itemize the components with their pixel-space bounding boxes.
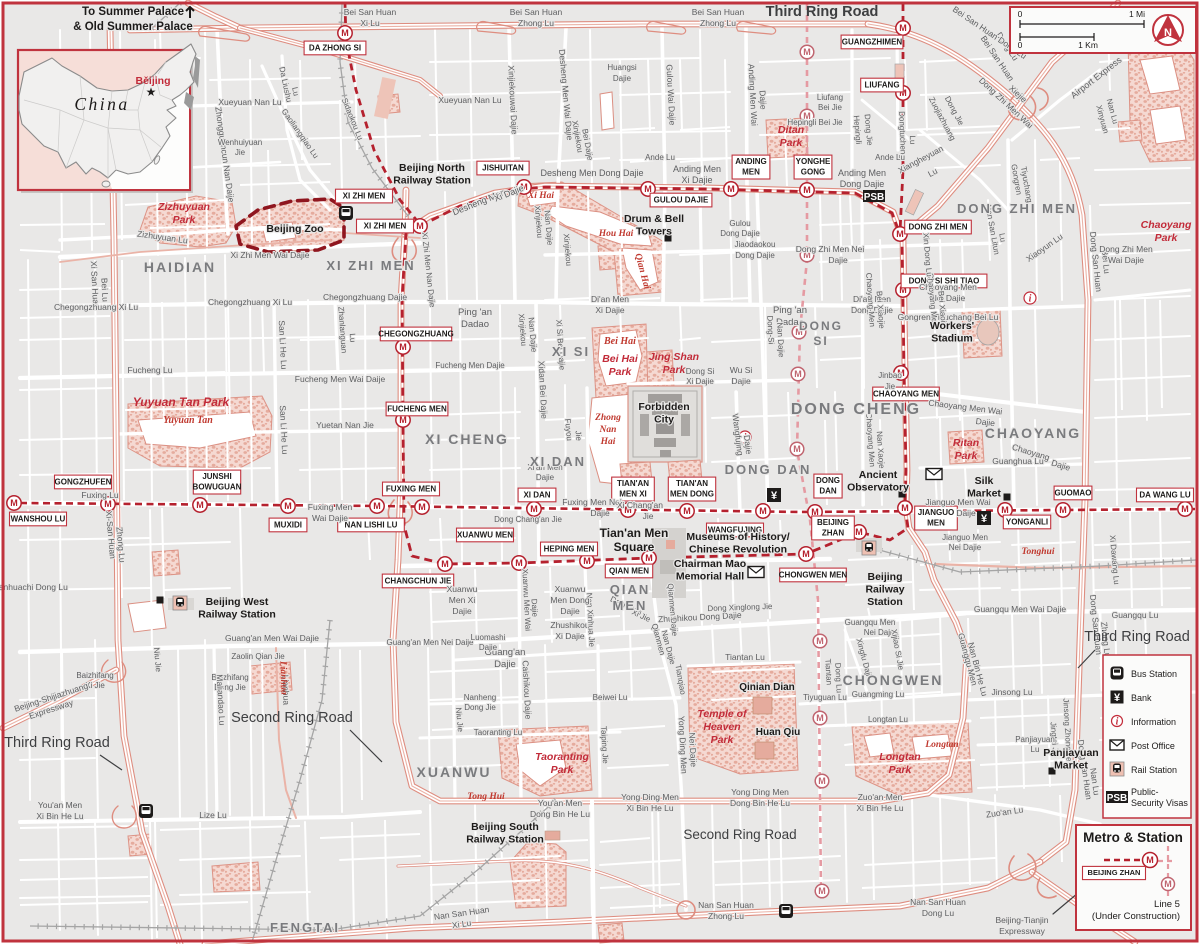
svg-text:Lu: Lu <box>290 86 301 97</box>
svg-text:¥: ¥ <box>981 513 988 525</box>
svg-text:Park: Park <box>711 734 735 746</box>
svg-text:Zhushikou: Zhushikou <box>550 620 589 630</box>
svg-text:M: M <box>399 342 407 352</box>
svg-text:GONG: GONG <box>801 167 825 176</box>
svg-text:Anding Men: Anding Men <box>838 168 886 178</box>
svg-text:Railway: Railway <box>865 584 904 596</box>
svg-text:M: M <box>583 556 591 566</box>
svg-text:Dong Si: Dong Si <box>686 367 715 376</box>
svg-text:Stadium: Stadium <box>931 333 972 345</box>
svg-text:Bus Station: Bus Station <box>1131 669 1177 679</box>
svg-text:Lianhuachi Dong Lu: Lianhuachi Dong Lu <box>0 582 68 592</box>
svg-text:Dajie: Dajie <box>560 606 580 616</box>
svg-text:Bei Hai: Bei Hai <box>603 336 636 347</box>
svg-text:Xi Zhi Men Wai Dajie: Xi Zhi Men Wai Dajie <box>230 250 309 260</box>
svg-text:Fucheng Men Dajie: Fucheng Men Dajie <box>435 361 505 370</box>
svg-text:CHAOYANG: CHAOYANG <box>985 425 1081 441</box>
svg-text:Zaolin Qian Jie: Zaolin Qian Jie <box>231 652 285 661</box>
svg-text:M: M <box>645 553 653 563</box>
svg-text:Bei Lu: Bei Lu <box>99 278 110 303</box>
svg-text:Guanghua Lu: Guanghua Lu <box>992 456 1044 466</box>
svg-text:M: M <box>441 559 449 569</box>
svg-text:Dadao: Dadao <box>461 319 489 330</box>
svg-text:Guang'an Men Nei Daije: Guang'an Men Nei Daije <box>387 638 474 647</box>
svg-text:MEN: MEN <box>927 519 945 528</box>
svg-text:Post Office: Post Office <box>1131 741 1175 751</box>
svg-text:DONG ZHI MEN: DONG ZHI MEN <box>957 201 1077 216</box>
svg-text:Xi Bin He Lu: Xi Bin He Lu <box>856 803 904 813</box>
svg-text:Jie: Jie <box>885 382 896 391</box>
svg-text:i: i <box>1116 717 1119 728</box>
svg-text:TIAN'AN: TIAN'AN <box>617 479 649 488</box>
svg-text:M: M <box>855 527 863 537</box>
svg-text:Information: Information <box>1131 717 1176 727</box>
svg-text:Tian'an Men: Tian'an Men <box>600 526 669 540</box>
svg-text:Zuo'an Men: Zuo'an Men <box>858 792 903 802</box>
svg-text:Xi Dajie: Xi Dajie <box>681 175 712 185</box>
svg-text:Jie: Jie <box>574 430 584 442</box>
svg-text:City: City <box>654 414 674 426</box>
svg-text:Longtan: Longtan <box>879 751 920 763</box>
svg-text:Huangsi: Huangsi <box>607 63 637 72</box>
svg-text:Dajie: Dajie <box>479 643 498 652</box>
svg-text:DONG DAN: DONG DAN <box>725 462 812 477</box>
svg-text:Park: Park <box>609 366 633 378</box>
svg-text:Lu: Lu <box>348 333 358 343</box>
svg-text:CHEGONGZHUANG: CHEGONGZHUANG <box>378 329 454 338</box>
svg-text:Drum & Bell: Drum & Bell <box>624 213 684 225</box>
svg-text:Zhong Lu: Zhong Lu <box>700 18 736 28</box>
svg-text:Gulou: Gulou <box>729 219 750 228</box>
svg-text:Hou Hai: Hou Hai <box>598 229 634 239</box>
svg-text:M: M <box>1164 879 1172 889</box>
svg-text:Beijing-Tianjin: Beijing-Tianjin <box>995 915 1048 925</box>
svg-text:Xuanwu: Xuanwu <box>555 584 586 594</box>
svg-text:M: M <box>794 369 802 379</box>
svg-text:Third Ring Road: Third Ring Road <box>4 735 110 751</box>
svg-text:Dong Jie: Dong Jie <box>464 703 496 712</box>
svg-text:Lu: Lu <box>997 232 1007 242</box>
svg-text:Park: Park <box>1155 232 1179 244</box>
svg-text:JUNSHI: JUNSHI <box>202 472 231 481</box>
svg-text:Tonghui: Tonghui <box>1022 547 1055 557</box>
svg-text:Chegongzhuang Xi Lu: Chegongzhuang Xi Lu <box>208 297 292 307</box>
svg-text:Dajie: Dajie <box>757 90 768 110</box>
svg-text:Jie: Jie <box>643 511 654 521</box>
svg-text:BEIJING: BEIJING <box>817 518 849 527</box>
svg-text:XI DAN: XI DAN <box>530 454 586 469</box>
svg-text:BEIJING ZHAN: BEIJING ZHAN <box>1088 868 1141 877</box>
svg-text:M: M <box>104 499 112 509</box>
svg-text:XI SI: XI SI <box>552 344 590 359</box>
svg-text:Chegongzhuang Dajie: Chegongzhuang Dajie <box>323 292 407 302</box>
svg-text:M: M <box>816 713 824 723</box>
svg-text:Nan San Huan: Nan San Huan <box>910 897 966 907</box>
svg-text:Dong-Si: Dong-Si <box>765 315 776 345</box>
svg-text:Market: Market <box>1054 760 1088 772</box>
svg-text:M: M <box>341 28 349 38</box>
svg-text:Dajie: Dajie <box>494 659 516 670</box>
svg-text:DONG CHENG: DONG CHENG <box>791 401 921 418</box>
svg-text:Chairman Mao: Chairman Mao <box>674 558 746 570</box>
svg-text:Xi Dajie: Xi Dajie <box>555 631 585 641</box>
svg-text:M: M <box>10 498 18 508</box>
svg-text:BOWUGUAN: BOWUGUAN <box>193 482 242 491</box>
svg-text:Market: Market <box>967 488 1001 500</box>
svg-text:Dajie: Dajie <box>613 74 632 83</box>
svg-text:Silk: Silk <box>975 475 994 487</box>
svg-text:M: M <box>759 506 767 516</box>
svg-text:Park: Park <box>780 137 804 149</box>
svg-text:Jing Shan: Jing Shan <box>649 351 699 363</box>
svg-text:Taoranting: Taoranting <box>535 751 589 763</box>
svg-text:ZHAN: ZHAN <box>822 529 844 538</box>
svg-text:Xi Lu: Xi Lu <box>360 18 380 28</box>
svg-text:XI DAN: XI DAN <box>523 490 550 499</box>
svg-text:Railway Station: Railway Station <box>198 609 276 621</box>
svg-text:MEN DONG: MEN DONG <box>670 489 714 498</box>
svg-text:DONG ZHI MEN: DONG ZHI MEN <box>908 222 967 231</box>
svg-text:MEN XI: MEN XI <box>619 489 647 498</box>
svg-text:M: M <box>416 221 424 231</box>
svg-text:CHONGWEN: CHONGWEN <box>843 672 944 688</box>
svg-text:M: M <box>802 549 810 559</box>
svg-text:Xi Dajie: Xi Dajie <box>595 305 625 315</box>
svg-text:Public-: Public- <box>1131 787 1159 797</box>
svg-text:Tiantan Lu: Tiantan Lu <box>725 652 765 662</box>
svg-text:Security Visas: Security Visas <box>1131 798 1188 808</box>
svg-text:CHANGCHUN JIE: CHANGCHUN JIE <box>385 576 452 585</box>
svg-text:XI ZHI MEN: XI ZHI MEN <box>326 258 415 273</box>
svg-text:M: M <box>530 504 538 514</box>
svg-text:XUANWU MEN: XUANWU MEN <box>457 530 513 539</box>
svg-text:Dong Chang'an Jie: Dong Chang'an Jie <box>494 515 562 524</box>
svg-text:Yuyuan Tan: Yuyuan Tan <box>163 415 213 426</box>
svg-text:M: M <box>1181 504 1189 514</box>
svg-text:Bei San Huan: Bei San Huan <box>692 7 745 17</box>
svg-text:Xi Chang'an: Xi Chang'an <box>617 500 663 510</box>
svg-text:Lu: Lu <box>1031 745 1040 754</box>
svg-text:M: M <box>418 502 426 512</box>
svg-text:WANSHOU LU: WANSHOU LU <box>11 514 66 523</box>
svg-text:Ande Lu: Ande Lu <box>875 153 905 162</box>
svg-text:QIAN MEN: QIAN MEN <box>609 566 649 575</box>
svg-text:ANDING: ANDING <box>735 157 767 166</box>
svg-text:Huan Qiu: Huan Qiu <box>756 727 800 738</box>
svg-text:M: M <box>816 636 824 646</box>
svg-text:Square: Square <box>614 540 655 554</box>
svg-text:TIAN'AN: TIAN'AN <box>676 479 708 488</box>
svg-text:Park: Park <box>551 764 575 776</box>
svg-text:SI: SI <box>813 334 828 348</box>
svg-text:To Summer Palace: To Summer Palace <box>82 6 184 18</box>
svg-text:YONGHE: YONGHE <box>796 157 831 166</box>
svg-text:Xi Bin He Lu: Xi Bin He Lu <box>626 803 674 813</box>
svg-text:Guang'an Men Wai Dajie: Guang'an Men Wai Dajie <box>225 633 319 643</box>
svg-text:Metro & Station: Metro & Station <box>1083 830 1183 845</box>
svg-text:Line 5: Line 5 <box>1154 899 1180 910</box>
svg-text:Ping 'an: Ping 'an <box>773 305 807 316</box>
svg-text:Dajie: Dajie <box>452 606 472 616</box>
svg-text:Railway Station: Railway Station <box>466 834 544 846</box>
svg-text:XUANWU: XUANWU <box>417 764 492 780</box>
svg-text:Dong Dajie: Dong Dajie <box>840 179 885 189</box>
svg-text:Jinsong Lu: Jinsong Lu <box>991 687 1032 697</box>
svg-text:YONGANLI: YONGANLI <box>1006 517 1048 526</box>
svg-text:GONGZHUFEN: GONGZHUFEN <box>55 477 112 486</box>
svg-text:Second Ring Road: Second Ring Road <box>683 827 796 842</box>
svg-text:China: China <box>74 94 129 114</box>
svg-text:Chaoyang: Chaoyang <box>1141 219 1192 231</box>
svg-text:JIANGUO: JIANGUO <box>918 508 954 517</box>
svg-text:Wai Dajie: Wai Dajie <box>312 513 348 523</box>
svg-text:Bei San Huan: Bei San Huan <box>344 7 397 17</box>
svg-text:(Under Construction): (Under Construction) <box>1092 911 1180 922</box>
svg-text:Dajie: Dajie <box>530 599 540 618</box>
svg-text:DONG: DONG <box>799 319 843 333</box>
svg-text:Luomashi: Luomashi <box>471 633 506 642</box>
svg-text:DA ZHONG SI: DA ZHONG SI <box>309 43 361 52</box>
svg-text:M: M <box>899 23 907 33</box>
svg-text:0: 0 <box>1018 40 1023 50</box>
svg-text:Lize Lu: Lize Lu <box>199 810 227 820</box>
svg-text:M: M <box>793 444 801 454</box>
svg-text:Yuetan Nan Jie: Yuetan Nan Jie <box>316 420 374 430</box>
svg-text:Park: Park <box>173 214 197 226</box>
svg-text:Tiantan: Tiantan <box>823 658 833 685</box>
svg-text:Jie: Jie <box>235 148 246 157</box>
svg-text:M: M <box>896 229 904 239</box>
svg-text:Anding Men: Anding Men <box>673 164 721 174</box>
svg-text:XI ZHI MEN: XI ZHI MEN <box>343 191 386 200</box>
svg-text:Park: Park <box>955 450 979 462</box>
svg-text:MEN: MEN <box>613 598 648 613</box>
svg-text:Workers': Workers' <box>930 320 974 332</box>
svg-text:Guangqu Men Wai Dajie: Guangqu Men Wai Dajie <box>974 604 1067 614</box>
svg-text:Nan: Nan <box>599 425 617 435</box>
svg-text:Longtan: Longtan <box>924 740 958 750</box>
svg-text:& Old Summer Palace: & Old Summer Palace <box>73 21 193 33</box>
svg-text:Dong Bin He Lu: Dong Bin He Lu <box>730 798 790 808</box>
svg-text:Nan San Huan: Nan San Huan <box>698 900 754 910</box>
svg-text:MEN: MEN <box>742 167 760 176</box>
svg-text:Fuxing Men Nei: Fuxing Men Nei <box>562 497 622 507</box>
svg-text:Dong Zhi Men Nei: Dong Zhi Men Nei <box>796 244 865 254</box>
svg-text:GUOMAO: GUOMAO <box>1055 488 1092 497</box>
svg-text:Yong Ding Men: Yong Ding Men <box>621 792 679 802</box>
svg-text:Dongtucheng: Dongtucheng <box>897 111 908 159</box>
svg-text:Lianhua: Lianhua <box>277 660 288 695</box>
svg-text:M: M <box>818 886 826 896</box>
svg-text:Museums of History/: Museums of History/ <box>686 531 789 543</box>
svg-text:MUXIDI: MUXIDI <box>274 520 302 529</box>
svg-text:Expressway: Expressway <box>999 926 1046 936</box>
svg-text:Nan Dajie: Nan Dajie <box>775 322 786 358</box>
svg-text:Jiaodaokou: Jiaodaokou <box>735 240 776 249</box>
svg-text:LIUFANG: LIUFANG <box>864 80 899 89</box>
svg-text:Nanheng: Nanheng <box>464 693 496 702</box>
svg-text:HEPING MEN: HEPING MEN <box>544 544 595 553</box>
svg-text:Wenhuiyuan: Wenhuiyuan <box>218 138 262 147</box>
svg-text:M: M <box>803 185 811 195</box>
svg-text:Di'an Men: Di'an Men <box>591 294 629 304</box>
svg-text:Xueyuan Nan Lu: Xueyuan Nan Lu <box>218 97 282 107</box>
svg-text:1 Mi: 1 Mi <box>1129 9 1145 19</box>
svg-text:Xuanwu: Xuanwu <box>447 584 478 594</box>
svg-text:Dajie: Dajie <box>590 508 610 518</box>
svg-text:Dong Lu: Dong Lu <box>922 908 954 918</box>
svg-text:Nei Dajie: Nei Dajie <box>949 543 982 552</box>
svg-text:Forbidden: Forbidden <box>638 401 689 413</box>
svg-text:Nei Dajie: Nei Dajie <box>687 732 699 767</box>
svg-text:M: M <box>373 501 381 511</box>
svg-text:Dong Dajie: Dong Dajie <box>735 251 775 260</box>
svg-text:Beijing West: Beijing West <box>206 596 269 608</box>
svg-text:FENGTAI: FENGTAI <box>270 920 340 935</box>
svg-text:Dong Dajie: Dong Dajie <box>720 229 760 238</box>
svg-text:PSB: PSB <box>1107 793 1128 804</box>
svg-text:Liufang: Liufang <box>817 93 843 102</box>
svg-text:i: i <box>1029 294 1032 305</box>
svg-text:M: M <box>1001 505 1009 515</box>
svg-text:Beiwei Lu: Beiwei Lu <box>593 693 628 702</box>
svg-text:Dong Zhi Men: Dong Zhi Men <box>1099 244 1153 254</box>
svg-text:Beijing South: Beijing South <box>471 821 539 833</box>
svg-text:NAN LISHI LU: NAN LISHI LU <box>345 520 398 529</box>
svg-text:Fucheng Lu: Fucheng Lu <box>128 365 173 375</box>
svg-text:DONG: DONG <box>816 476 840 485</box>
svg-text:Men Xi: Men Xi <box>449 595 476 605</box>
svg-text:Panjiayuan: Panjiayuan <box>1043 747 1098 759</box>
svg-text:Dajie: Dajie <box>731 376 751 386</box>
svg-text:1 Km: 1 Km <box>1078 40 1098 50</box>
svg-text:Ande Lu: Ande Lu <box>645 153 675 162</box>
svg-text:Wu Si: Wu Si <box>730 365 753 375</box>
svg-text:Longtan Lu: Longtan Lu <box>868 715 908 724</box>
svg-text:JISHUITAN: JISHUITAN <box>482 163 524 172</box>
svg-text:Towers: Towers <box>636 226 672 238</box>
svg-text:M: M <box>818 776 826 786</box>
svg-text:Rail Station: Rail Station <box>1131 765 1177 775</box>
svg-text:Third Ring Road: Third Ring Road <box>1084 629 1190 645</box>
svg-text:Daije: Daije <box>956 508 976 518</box>
svg-text:Memorial Hall: Memorial Hall <box>676 571 744 583</box>
svg-text:M: M <box>1146 855 1154 865</box>
svg-text:Fuxing Lu: Fuxing Lu <box>81 490 119 500</box>
svg-text:You'an Men: You'an Men <box>538 798 583 808</box>
svg-text:Jinbao: Jinbao <box>878 371 902 380</box>
svg-text:¥: ¥ <box>1114 692 1121 704</box>
svg-text:Men Dong: Men Dong <box>550 595 589 605</box>
svg-text:Yuyuan Tan Park: Yuyuan Tan Park <box>133 395 231 409</box>
svg-text:0: 0 <box>1018 9 1023 19</box>
svg-text:M: M <box>515 558 523 568</box>
svg-text:M: M <box>1059 505 1067 515</box>
svg-text:Tiyuguan Lu: Tiyuguan Lu <box>803 693 847 702</box>
svg-text:Lu: Lu <box>908 135 917 144</box>
svg-text:PSB: PSB <box>864 192 885 203</box>
svg-text:Bei Hai: Bei Hai <box>602 353 639 365</box>
svg-text:Chinese Revolution: Chinese Revolution <box>689 544 787 556</box>
svg-text:Dajie: Dajie <box>828 255 848 265</box>
svg-text:Dajie: Dajie <box>536 473 555 482</box>
svg-text:Heaven: Heaven <box>703 721 740 733</box>
svg-text:Dong Bin He Lu: Dong Bin He Lu <box>530 809 590 819</box>
svg-text:Panjiayuan: Panjiayuan <box>1015 735 1055 744</box>
svg-text:Temple of: Temple of <box>697 708 748 720</box>
svg-text:Zhong Lu: Zhong Lu <box>518 18 554 28</box>
svg-text:Guangming Lu: Guangming Lu <box>852 690 904 699</box>
svg-text:M: M <box>683 506 691 516</box>
svg-text:Xueyuan Nan Lu: Xueyuan Nan Lu <box>438 95 502 105</box>
svg-text:Ritan: Ritan <box>953 437 979 449</box>
svg-text:M: M <box>196 500 204 510</box>
svg-text:Ping 'an: Ping 'an <box>458 307 492 318</box>
svg-text:M: M <box>901 503 909 513</box>
svg-text:★: ★ <box>146 85 157 99</box>
svg-text:HAIDIAN: HAIDIAN <box>144 259 216 275</box>
svg-text:Jianguo Men: Jianguo Men <box>942 533 988 542</box>
svg-text:Bei San Huan: Bei San Huan <box>510 7 563 17</box>
svg-text:Fuxing Men: Fuxing Men <box>308 502 353 512</box>
svg-text:CHONGWEN MEN: CHONGWEN MEN <box>779 570 848 579</box>
svg-text:Beijing Zoo: Beijing Zoo <box>266 223 323 235</box>
svg-text:DA WANG LU: DA WANG LU <box>1139 490 1190 499</box>
svg-text:Wai Dajie: Wai Dajie <box>1108 255 1144 265</box>
svg-text:You'an Men: You'an Men <box>38 800 83 810</box>
svg-text:XI CHENG: XI CHENG <box>425 431 509 447</box>
svg-text:Desheng Men Dong Dajie: Desheng Men Dong Dajie <box>540 168 643 178</box>
svg-text:Guangqu Lu: Guangqu Lu <box>1112 610 1159 620</box>
svg-text:Bank: Bank <box>1131 693 1152 703</box>
svg-text:Xi Bin He Lu: Xi Bin He Lu <box>36 811 84 821</box>
svg-text:Bei Jie: Bei Jie <box>818 103 843 112</box>
svg-text:Zhong Lu: Zhong Lu <box>708 911 744 921</box>
svg-text:Observatory: Observatory <box>847 482 909 494</box>
svg-text:Taoranting Lu: Taoranting Lu <box>474 728 522 737</box>
svg-text:Tong Hui: Tong Hui <box>467 792 505 802</box>
svg-text:Third Ring Road: Third Ring Road <box>766 4 879 20</box>
svg-text:Qinian Dian: Qinian Dian <box>739 682 795 693</box>
svg-text:Yong Ding Men: Yong Ding Men <box>731 787 789 797</box>
svg-text:M: M <box>727 184 735 194</box>
svg-text:Ditan: Ditan <box>778 124 804 136</box>
svg-text:FUXING MEN: FUXING MEN <box>386 484 436 493</box>
svg-text:M: M <box>803 47 811 57</box>
svg-text:Railway Station: Railway Station <box>393 175 471 187</box>
svg-text:GUANGZHIMEN: GUANGZHIMEN <box>842 37 903 46</box>
svg-text:¥: ¥ <box>771 490 778 502</box>
svg-text:Beijing: Beijing <box>867 571 902 583</box>
svg-text:QIAN: QIAN <box>610 582 651 597</box>
svg-text:Fucheng Men Wai Daije: Fucheng Men Wai Daije <box>295 374 386 384</box>
svg-text:DAN: DAN <box>819 486 837 495</box>
svg-text:M: M <box>399 415 407 425</box>
svg-text:Guangqu Men: Guangqu Men <box>845 618 896 627</box>
svg-text:Park: Park <box>663 364 687 376</box>
svg-text:M: M <box>284 501 292 511</box>
svg-text:XI ZHI MEN: XI ZHI MEN <box>364 221 407 230</box>
svg-text:Zizhuyuan: Zizhuyuan <box>157 201 210 213</box>
svg-text:Xi Hai: Xi Hai <box>527 191 554 201</box>
svg-text:Park: Park <box>889 764 913 776</box>
svg-text:Hai: Hai <box>600 437 616 447</box>
svg-text:Zhong: Zhong <box>594 413 621 423</box>
svg-text:N: N <box>1164 27 1172 39</box>
svg-text:Ancient: Ancient <box>859 469 898 481</box>
svg-text:Station: Station <box>867 596 903 608</box>
svg-text:Baizhifang: Baizhifang <box>76 671 113 680</box>
